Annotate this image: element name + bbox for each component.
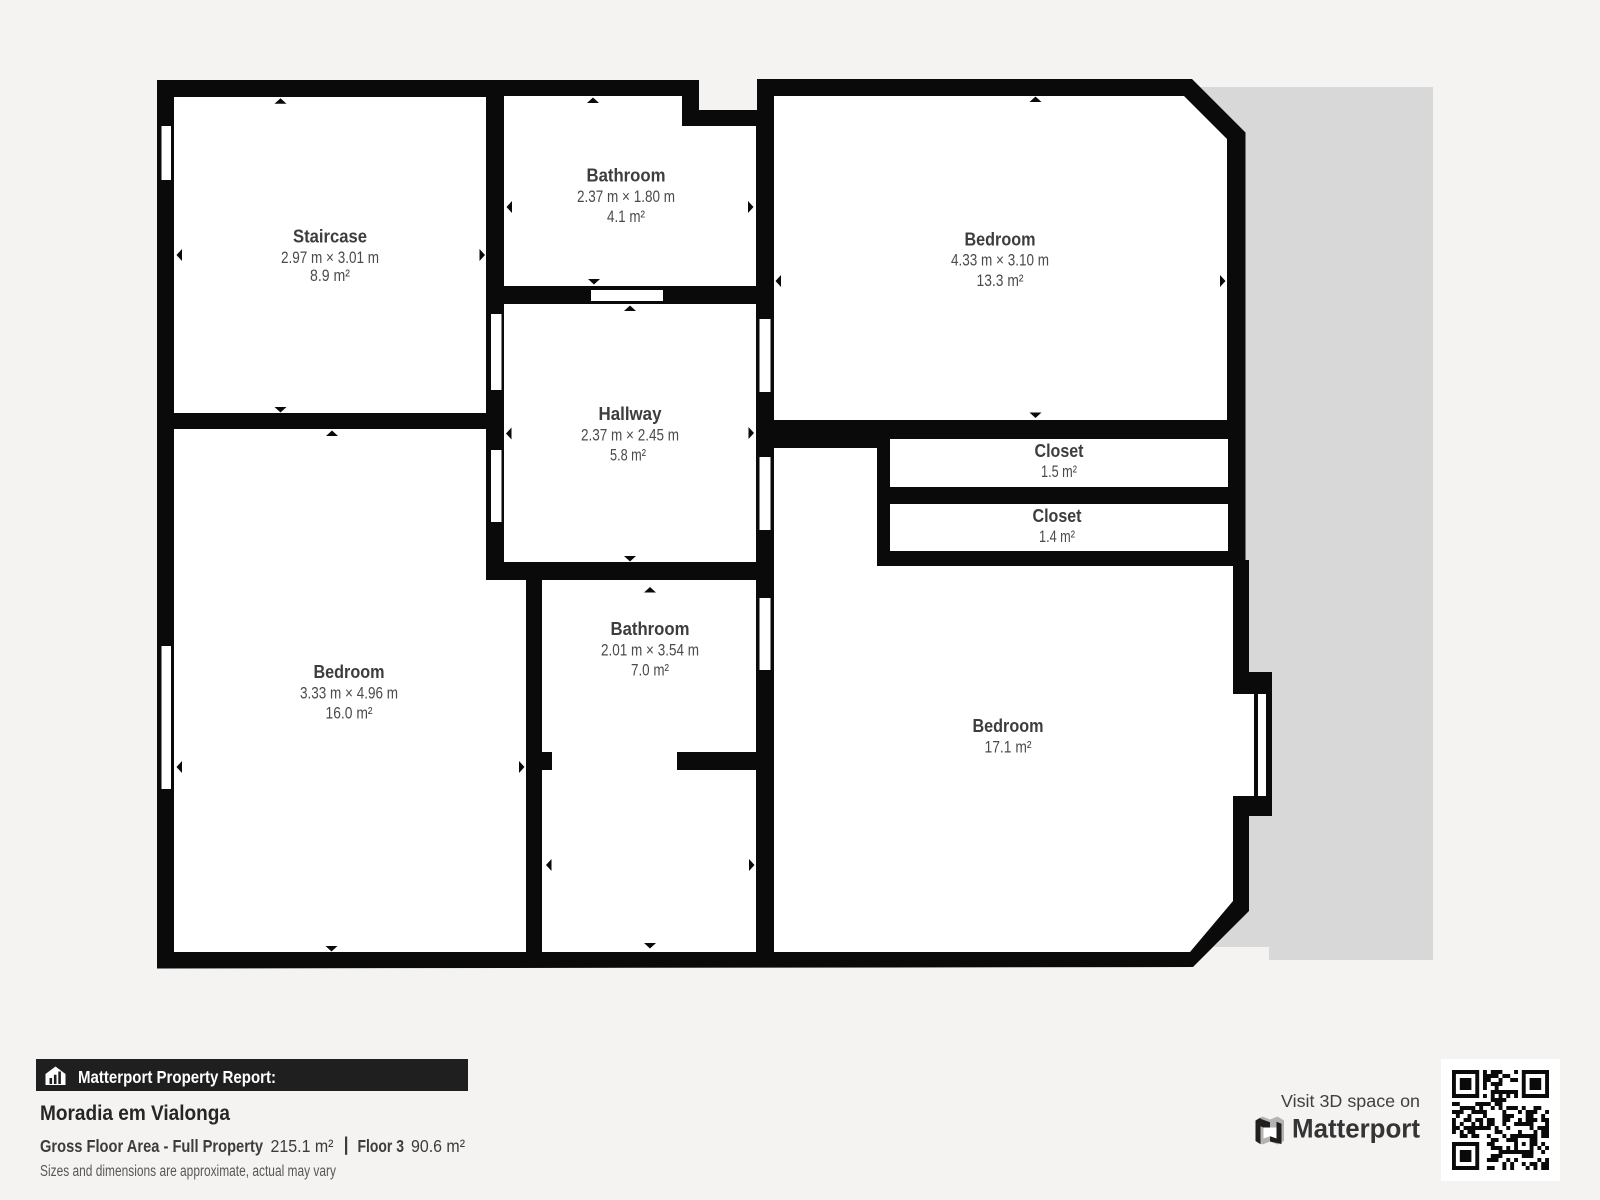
svg-text:Matterport: Matterport	[1292, 1114, 1420, 1144]
svg-text:1.5 m²: 1.5 m²	[1041, 462, 1077, 481]
svg-text:2.37 m × 2.45 m: 2.37 m × 2.45 m	[581, 425, 679, 444]
svg-text:3.33 m × 4.96 m: 3.33 m × 4.96 m	[300, 683, 398, 702]
svg-text:Bedroom: Bedroom	[314, 662, 385, 682]
svg-text:Gross Floor Area - Full Proper: Gross Floor Area - Full Property	[40, 1136, 263, 1156]
svg-text:Visit 3D space on: Visit 3D space on	[1281, 1091, 1420, 1111]
svg-text:Staircase: Staircase	[293, 227, 367, 247]
svg-text:5.8 m²: 5.8 m²	[610, 446, 646, 465]
svg-text:215.1 m²: 215.1 m²	[271, 1136, 334, 1156]
svg-text:16.0 m²: 16.0 m²	[326, 704, 373, 723]
svg-text:Bedroom: Bedroom	[973, 716, 1044, 736]
svg-text:4.33 m × 3.10 m: 4.33 m × 3.10 m	[951, 251, 1049, 270]
svg-text:7.0 m²: 7.0 m²	[631, 661, 669, 680]
svg-text:2.37 m × 1.80 m: 2.37 m × 1.80 m	[577, 187, 675, 206]
svg-text:Sizes and dimensions are appro: Sizes and dimensions are approximate, ac…	[40, 1163, 336, 1180]
svg-text:Hallway: Hallway	[599, 404, 662, 424]
svg-text:Matterport Property Report:: Matterport Property Report:	[78, 1067, 276, 1087]
svg-text:4.1 m²: 4.1 m²	[607, 207, 645, 226]
svg-text:8.9 m²: 8.9 m²	[310, 266, 350, 285]
svg-text:Floor 3: Floor 3	[358, 1136, 405, 1156]
svg-text:13.3 m²: 13.3 m²	[977, 271, 1024, 290]
svg-text:1.4 m²: 1.4 m²	[1039, 527, 1075, 546]
svg-text:Bathroom: Bathroom	[587, 166, 666, 186]
svg-text:90.6 m²: 90.6 m²	[411, 1136, 465, 1156]
svg-text:Bathroom: Bathroom	[611, 619, 690, 639]
svg-text:17.1 m²: 17.1 m²	[985, 737, 1032, 756]
svg-text:Closet: Closet	[1035, 441, 1084, 461]
svg-text:2.97 m × 3.01 m: 2.97 m × 3.01 m	[281, 248, 379, 267]
svg-text:Bedroom: Bedroom	[965, 229, 1036, 249]
svg-text:2.01 m × 3.54 m: 2.01 m × 3.54 m	[601, 640, 699, 659]
svg-text:Moradia em Vialonga: Moradia em Vialonga	[40, 1101, 231, 1125]
svg-text:Closet: Closet	[1033, 506, 1082, 526]
